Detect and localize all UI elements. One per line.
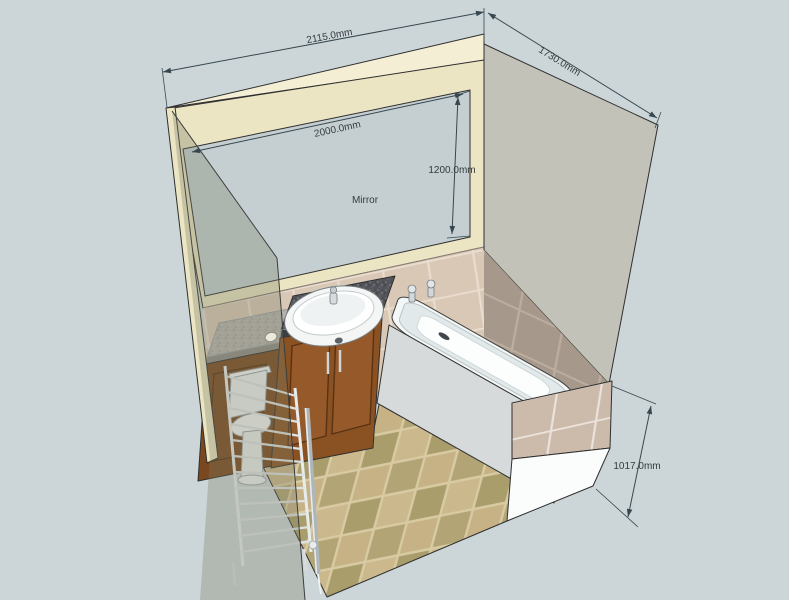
bathroom-3d-viewport: 2115.0mm 1730.0mm 2000.0mm 1200.0mm 1017… [0,0,789,600]
dimension-label-mirror-height[interactable]: 1200.0mm [428,165,475,176]
bath-tap-cold[interactable] [427,280,435,297]
radiator-valve[interactable] [309,541,317,549]
basin-tap[interactable] [330,293,337,304]
mirror-label[interactable]: Mirror [352,195,379,206]
dimension-label-front-wall-height[interactable]: 1017.0mm [613,461,660,472]
bath-tap-hot[interactable] [408,285,416,302]
bathroom-3d-scene: 2115.0mm 1730.0mm 2000.0mm 1200.0mm 1017… [0,0,789,600]
basin-tap-handle [330,287,336,293]
